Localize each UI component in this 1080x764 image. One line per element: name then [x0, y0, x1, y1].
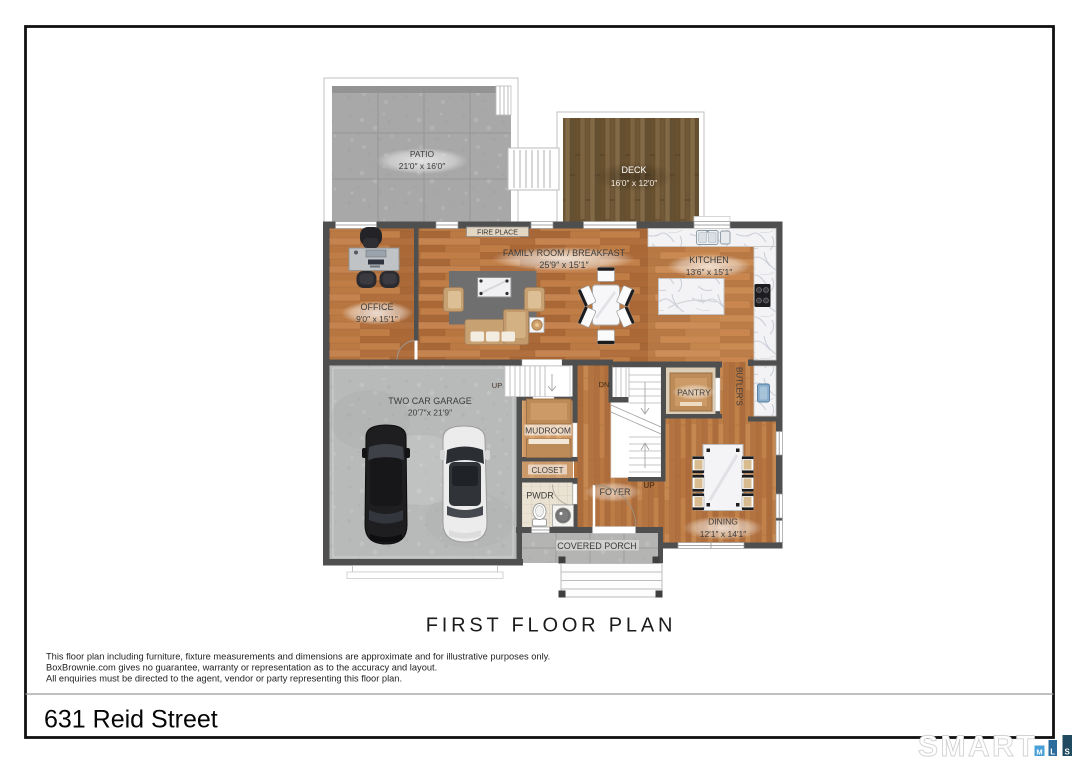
svg-text:BUTLER’S: BUTLER’S — [735, 367, 744, 406]
svg-text:KITCHEN: KITCHEN — [689, 255, 729, 265]
svg-text:TWO CAR GARAGE: TWO CAR GARAGE — [388, 396, 472, 406]
svg-text:PANTRY: PANTRY — [677, 388, 711, 398]
svg-text:DECK: DECK — [621, 165, 646, 175]
svg-text:UP: UP — [492, 381, 502, 390]
svg-text:FIRST FLOOR PLAN: FIRST FLOOR PLAN — [426, 615, 676, 637]
svg-text:FAMILY ROOM / BREAKFAST: FAMILY ROOM / BREAKFAST — [503, 248, 626, 258]
svg-text:631 Reid Street: 631 Reid Street — [44, 706, 218, 734]
svg-text:13′6″ x 15′1″: 13′6″ x 15′1″ — [686, 267, 733, 277]
svg-text:S: S — [1065, 748, 1071, 757]
svg-text:20′7″x 21′9″: 20′7″x 21′9″ — [408, 408, 452, 418]
svg-text:12′1″ x 14′1″: 12′1″ x 14′1″ — [700, 529, 747, 539]
svg-text:21′0″ x 16′0″: 21′0″ x 16′0″ — [399, 161, 446, 171]
svg-text:DN: DN — [599, 380, 610, 389]
svg-text:PATIO: PATIO — [410, 149, 435, 159]
svg-text:L: L — [1050, 748, 1055, 757]
svg-text:9′0″ x 15′1″: 9′0″ x 15′1″ — [356, 314, 398, 324]
svg-text:OFFICE: OFFICE — [361, 302, 394, 312]
svg-text:UP: UP — [643, 481, 655, 490]
svg-text:SMART: SMART — [918, 730, 1037, 763]
svg-text:MUDROOM: MUDROOM — [525, 426, 571, 436]
svg-text:DINING: DINING — [708, 517, 738, 527]
svg-text:All enquiries must be directed: All enquiries must be directed to the ag… — [46, 674, 402, 684]
svg-text:FOYER: FOYER — [599, 487, 631, 497]
svg-text:COVERED PORCH: COVERED PORCH — [557, 541, 637, 551]
svg-text:16′0″ x 12′0″: 16′0″ x 12′0″ — [611, 178, 658, 188]
svg-text:25′9″ x 15′1″: 25′9″ x 15′1″ — [539, 260, 589, 270]
svg-text:CLOSET: CLOSET — [531, 466, 563, 475]
svg-text:FIRE PLACE: FIRE PLACE — [477, 230, 518, 237]
svg-text:BoxBrownie.com gives no guaran: BoxBrownie.com gives no guarantee, warra… — [46, 663, 437, 673]
svg-text:PWDR: PWDR — [526, 491, 554, 501]
svg-text:This floor plan including furn: This floor plan including furniture, fix… — [46, 652, 550, 662]
svg-text:M: M — [1036, 748, 1042, 757]
